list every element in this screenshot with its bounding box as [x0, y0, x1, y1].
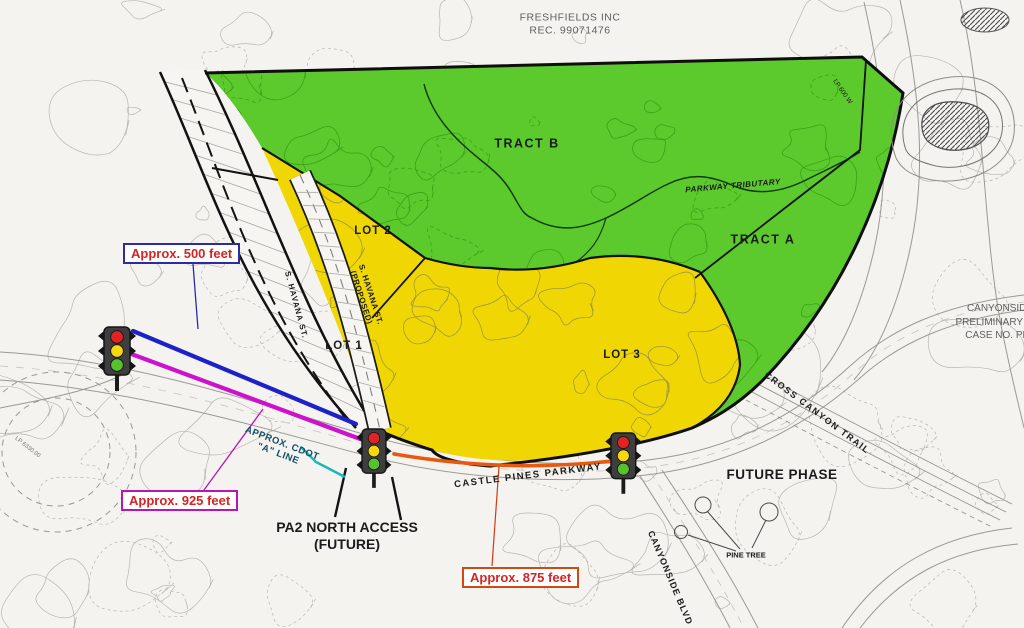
- measure-leader-500: [193, 264, 198, 329]
- traffic-signal-icon: [605, 433, 641, 494]
- owner-name: FRESHFIELDS INC: [520, 11, 621, 24]
- pine-tree-symbols: [675, 497, 779, 551]
- measurement-label-925: Approx. 925 feet: [121, 490, 238, 511]
- lot-2-label: LOT 2: [354, 225, 392, 239]
- pa2-north-access-label: PA2 NORTH ACCESS (FUTURE): [276, 519, 418, 553]
- site-plan-page: FRESHFIELDS INC REC. 99071476 TRACT B TR…: [0, 0, 1024, 628]
- tract-b-label: TRACT B: [494, 137, 559, 152]
- owner-record-note: FRESHFIELDS INC REC. 99071476: [520, 11, 621, 36]
- pine-tree-label: PINE TREE: [726, 551, 766, 560]
- measurement-label-500: Approx. 500 feet: [123, 243, 240, 264]
- traffic-signal-icon: [356, 429, 391, 488]
- site-plan-map: [0, 0, 1024, 628]
- case-note: CANYONSIDE PRELIMINARY PLA CASE NO. PP2: [955, 302, 1024, 343]
- lot-3-label: LOT 3: [603, 349, 641, 363]
- measurement-label-875: Approx. 875 feet: [462, 567, 579, 588]
- tract-a-label: TRACT A: [731, 233, 796, 248]
- pond: [891, 8, 1014, 181]
- lot-1-label: LOT 1: [325, 340, 363, 354]
- future-phase-label: FUTURE PHASE: [726, 467, 837, 483]
- owner-record-number: REC. 99071476: [520, 24, 621, 37]
